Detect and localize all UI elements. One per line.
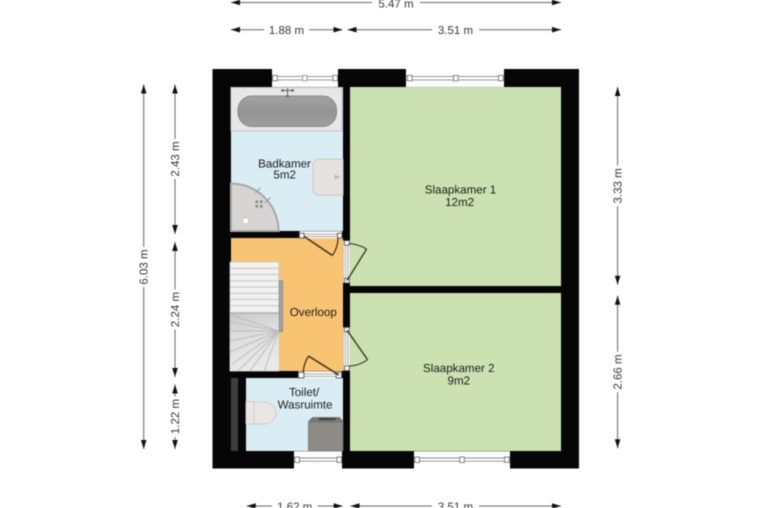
svg-text:Toilet/: Toilet/ <box>289 386 320 399</box>
svg-text:3.51 m: 3.51 m <box>438 25 473 37</box>
svg-text:1.62 m: 1.62 m <box>277 502 312 508</box>
svg-text:9m2: 9m2 <box>448 374 471 387</box>
svg-text:12m2: 12m2 <box>445 196 474 209</box>
svg-text:2.43 m: 2.43 m <box>170 141 182 176</box>
svg-text:2.66 m: 2.66 m <box>613 354 625 389</box>
svg-text:6.03 m: 6.03 m <box>139 249 151 284</box>
svg-text:1.88 m: 1.88 m <box>269 25 304 37</box>
svg-text:5.47 m: 5.47 m <box>378 0 413 10</box>
svg-text:Slaapkamer 2: Slaapkamer 2 <box>423 362 495 375</box>
svg-text:1.22 m: 1.22 m <box>170 399 182 434</box>
svg-text:5m2: 5m2 <box>273 168 296 181</box>
svg-text:Overloop: Overloop <box>290 306 337 319</box>
svg-text:2.24 m: 2.24 m <box>170 292 182 327</box>
svg-text:3.51 m: 3.51 m <box>438 502 473 508</box>
svg-text:Slaapkamer 1: Slaapkamer 1 <box>425 184 497 197</box>
svg-text:3.33 m: 3.33 m <box>613 168 625 203</box>
svg-text:Wasruimte: Wasruimte <box>278 398 333 411</box>
